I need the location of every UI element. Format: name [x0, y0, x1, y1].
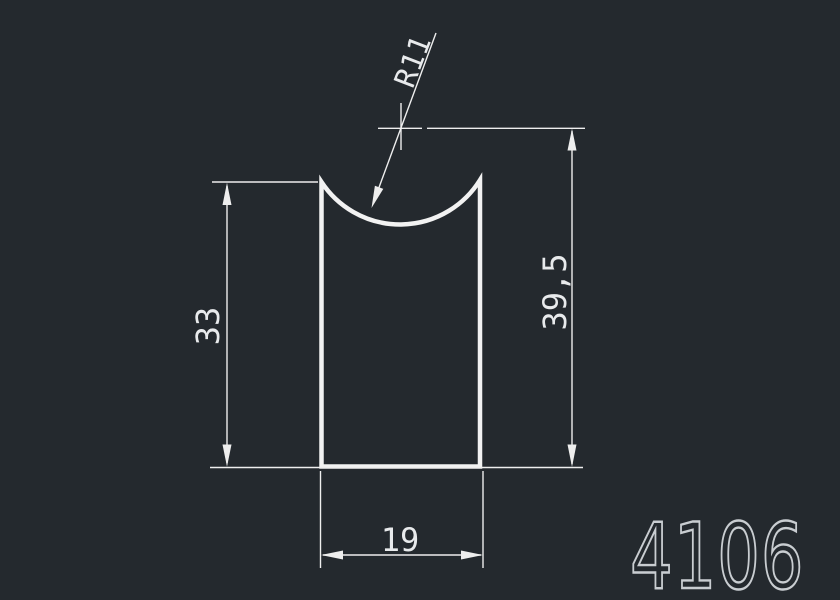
dimension-height-left: 33	[189, 182, 318, 467]
arrow-down-icon	[568, 445, 577, 467]
arrow-leader-icon	[372, 186, 384, 208]
drawing-canvas: 33 39,5 19 R11 4106	[0, 0, 840, 600]
profile-outline	[322, 180, 481, 467]
dimension-radius: R11	[372, 31, 438, 208]
dimension-value-radius: R11	[387, 31, 438, 92]
part-number-label: 4106	[630, 504, 804, 600]
arrow-down-icon	[223, 445, 232, 467]
dimension-value-height-left: 33	[189, 307, 227, 346]
cad-viewport: 33 39,5 19 R11 4106	[0, 0, 840, 600]
dimension-width-bottom: 19	[321, 471, 484, 568]
arrow-right-icon	[461, 551, 483, 560]
arrow-up-icon	[223, 183, 232, 205]
dimension-value-width: 19	[381, 521, 420, 559]
dimension-value-height-right: 39,5	[536, 253, 574, 330]
arrow-up-icon	[568, 129, 577, 151]
arrow-left-icon	[321, 551, 343, 560]
dimension-height-right: 39,5	[210, 128, 585, 467]
